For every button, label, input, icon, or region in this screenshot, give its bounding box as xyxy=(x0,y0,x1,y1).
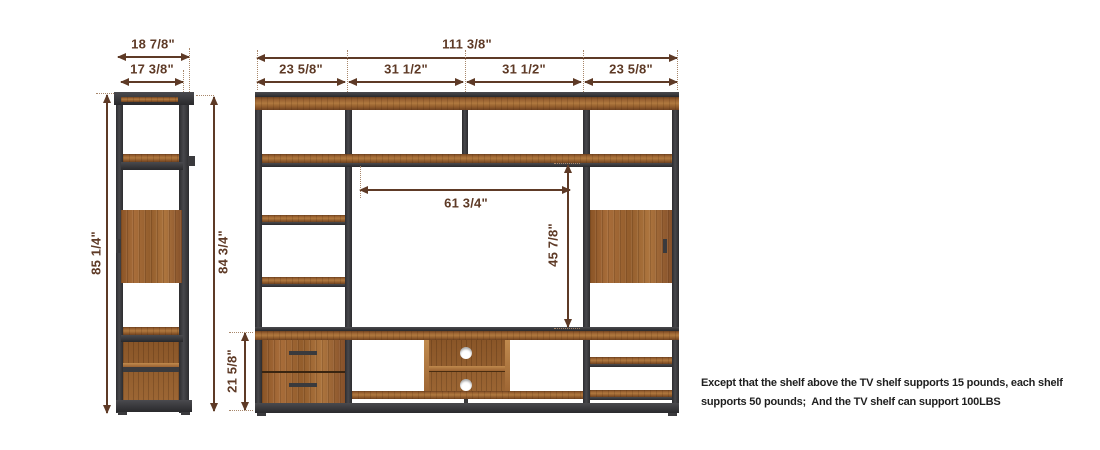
front-post-left xyxy=(255,93,262,413)
left-column-shelf-1 xyxy=(262,215,345,222)
cable-hole-top xyxy=(460,347,472,359)
right-column-shelf-2-edge xyxy=(590,397,672,400)
dim-section-1 xyxy=(257,81,345,83)
side-door-handle xyxy=(116,239,121,253)
front-upper-shelf xyxy=(262,154,672,163)
left-column-shelf-1-edge xyxy=(262,222,345,225)
right-column-shelf-1-edge xyxy=(590,364,672,367)
dim-section-4-label: 23 5/8" xyxy=(609,62,653,77)
dim-side-inner-width-label: 17 3/8" xyxy=(130,62,174,77)
drawer-top-handle xyxy=(289,351,317,355)
cable-hole-bottom xyxy=(460,379,472,391)
side-shelf-lower xyxy=(123,327,179,335)
weight-capacity-note: Except that the shelf above the TV shelf… xyxy=(701,374,1063,412)
dim-section-4 xyxy=(585,81,677,83)
ext-line xyxy=(189,48,190,92)
ext-line xyxy=(257,50,258,90)
dim-side-height-left-label: 85 1/4" xyxy=(89,231,104,275)
side-foot-left xyxy=(118,412,127,415)
media-cubby-shelf xyxy=(429,366,505,372)
ext-line xyxy=(183,70,184,92)
left-column-shelf-2-edge xyxy=(262,284,345,287)
front-top-shelf xyxy=(255,97,679,110)
ext-line xyxy=(465,50,466,92)
dim-section-2 xyxy=(349,81,463,83)
dim-section-3 xyxy=(467,81,581,83)
dim-tv-opening-height-label: 45 7/8" xyxy=(546,223,561,267)
ext-line xyxy=(196,95,214,96)
side-foot-right xyxy=(181,412,190,415)
ext-line xyxy=(347,50,348,92)
tv-shelf xyxy=(255,331,679,340)
side-shelf-upper xyxy=(123,154,179,162)
dim-side-inner-width xyxy=(121,81,183,83)
dim-side-outer-width xyxy=(118,56,189,58)
ext-line xyxy=(554,163,580,164)
right-column-shelf-1 xyxy=(590,357,672,364)
dim-section-3-label: 31 1/2" xyxy=(502,62,546,77)
dim-tv-opening-height xyxy=(567,165,569,327)
dim-total-width xyxy=(257,57,677,59)
dim-side-height-right-label: 84 3/4" xyxy=(216,230,231,274)
media-cubby-wall-right xyxy=(505,340,510,398)
console-bottom-board xyxy=(352,391,583,399)
side-cabinet-door xyxy=(121,210,182,283)
side-base-rail xyxy=(116,400,192,412)
ext-line xyxy=(229,410,253,411)
side-knob xyxy=(188,156,195,166)
ext-line xyxy=(96,93,114,94)
dim-console-height-label: 21 5/8" xyxy=(225,349,240,393)
dim-console-height xyxy=(244,333,246,410)
front-post-right-middle xyxy=(583,93,590,413)
dim-section-1-label: 23 5/8" xyxy=(279,62,323,77)
front-foot-left xyxy=(257,413,266,416)
dim-tv-opening-width-label: 61 3/4" xyxy=(444,196,488,211)
right-door-handle xyxy=(663,239,667,253)
front-base-rail xyxy=(255,403,679,413)
note-line-2: supports 50 pounds; And the TV shelf can… xyxy=(701,393,1063,412)
right-column-shelf-2 xyxy=(590,390,672,397)
side-shelf-lower-frame xyxy=(121,335,183,342)
ext-line xyxy=(583,50,584,92)
ext-line xyxy=(229,332,253,333)
dim-side-outer-width-label: 18 7/8" xyxy=(131,37,175,52)
front-foot-right xyxy=(668,413,677,416)
drawer-bottom-handle xyxy=(289,383,317,387)
drawer-bottom xyxy=(262,373,345,403)
note-line-1: Except that the shelf above the TV shelf… xyxy=(701,374,1063,393)
front-post-left-middle xyxy=(345,93,352,413)
dim-total-width-label: 111 3/8" xyxy=(442,37,492,52)
side-shelf-upper-frame xyxy=(121,162,183,170)
front-upper-shelf-edge xyxy=(262,163,672,167)
left-column-shelf-2 xyxy=(262,277,345,284)
side-interior-shelf-edge xyxy=(123,367,179,372)
ext-line xyxy=(677,50,678,90)
front-post-right xyxy=(672,93,679,413)
dim-section-2-label: 31 1/2" xyxy=(384,62,428,77)
dim-tv-opening-width xyxy=(360,189,570,191)
side-top-shelf-strip xyxy=(121,97,178,102)
ext-line xyxy=(554,328,580,329)
right-cabinet-door xyxy=(590,210,672,283)
ext-line xyxy=(360,166,361,198)
diagram-canvas: 18 7/8" 17 3/8" 85 1/4" 84 3/4" 111 3/8"… xyxy=(0,0,1100,450)
dim-side-height-left xyxy=(106,95,108,413)
drawer-top xyxy=(262,340,345,373)
